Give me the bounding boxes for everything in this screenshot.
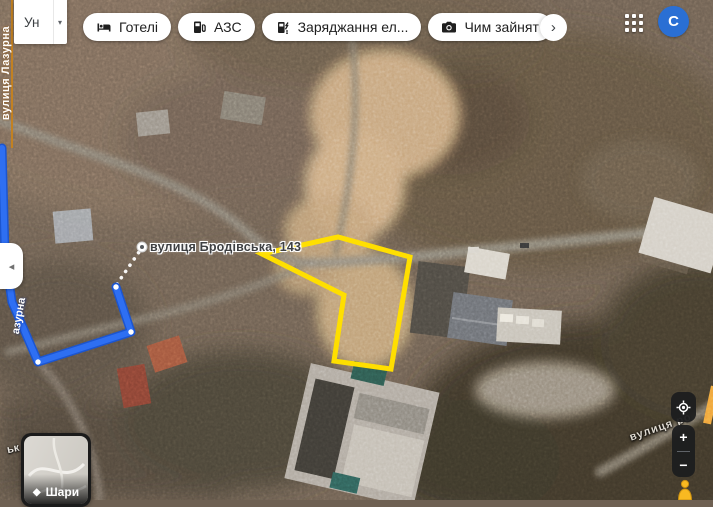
my-location-button[interactable] bbox=[671, 392, 696, 422]
street-label-lazurna: вулиця Лазурна bbox=[0, 7, 14, 139]
zoom-control: + − bbox=[672, 425, 695, 477]
filter-chips-bar: Готелі АЗС Заряджання ел... Чим зайнят › bbox=[83, 13, 552, 41]
layers-map-preview: ◆ Шари bbox=[24, 436, 88, 504]
search-input-value[interactable]: Ун bbox=[14, 15, 53, 30]
chip-label: АЗС bbox=[214, 19, 242, 35]
google-apps-grid-icon[interactable] bbox=[625, 14, 643, 32]
street-label-fragment: ьк bbox=[6, 442, 21, 456]
account-avatar[interactable]: C bbox=[658, 6, 689, 37]
chip-label: Заряджання ел... bbox=[298, 19, 409, 35]
chip-label: Готелі bbox=[119, 19, 158, 35]
chip-gas-stations[interactable]: АЗС bbox=[178, 13, 255, 41]
search-dropdown-caret[interactable]: ▾ bbox=[53, 0, 67, 44]
zoom-in-button[interactable]: + bbox=[672, 429, 695, 445]
layers-icon: ◆ bbox=[33, 487, 41, 498]
satellite-map-canvas[interactable] bbox=[0, 0, 713, 500]
maps-satellite-page: { "header": { "search_box": {"value": "У… bbox=[0, 0, 713, 500]
route-dot bbox=[35, 359, 40, 364]
more-chips-chevron[interactable]: › bbox=[540, 14, 567, 41]
zoom-divider bbox=[677, 451, 690, 452]
layers-button[interactable]: ◆ Шари bbox=[21, 433, 91, 507]
my-location-icon bbox=[676, 400, 691, 415]
zoom-out-button[interactable]: − bbox=[672, 457, 695, 473]
route-dot bbox=[113, 284, 118, 289]
camera-icon bbox=[441, 19, 457, 35]
chip-ev-charging[interactable]: Заряджання ел... bbox=[262, 13, 422, 41]
chip-label: Чим зайнят bbox=[464, 19, 538, 35]
chip-things-to-do[interactable]: Чим зайнят › bbox=[428, 13, 551, 41]
gas-pump-icon bbox=[191, 19, 207, 35]
search-box[interactable]: Ун ▾ bbox=[14, 0, 67, 44]
place-label[interactable]: вулиця Бродівська, 143 bbox=[150, 240, 301, 254]
layers-label: Шари bbox=[46, 485, 79, 499]
side-panel-toggle[interactable]: ◂ bbox=[0, 243, 23, 289]
satellite-grain bbox=[0, 0, 713, 500]
place-marker-core bbox=[140, 245, 144, 249]
chevron-left-icon: ◂ bbox=[9, 260, 15, 273]
route-dot bbox=[128, 329, 133, 334]
chip-hotels[interactable]: Готелі bbox=[83, 13, 171, 41]
ev-charging-icon bbox=[275, 19, 291, 35]
pegman-icon[interactable] bbox=[674, 479, 696, 500]
hotel-bed-icon bbox=[96, 19, 112, 35]
